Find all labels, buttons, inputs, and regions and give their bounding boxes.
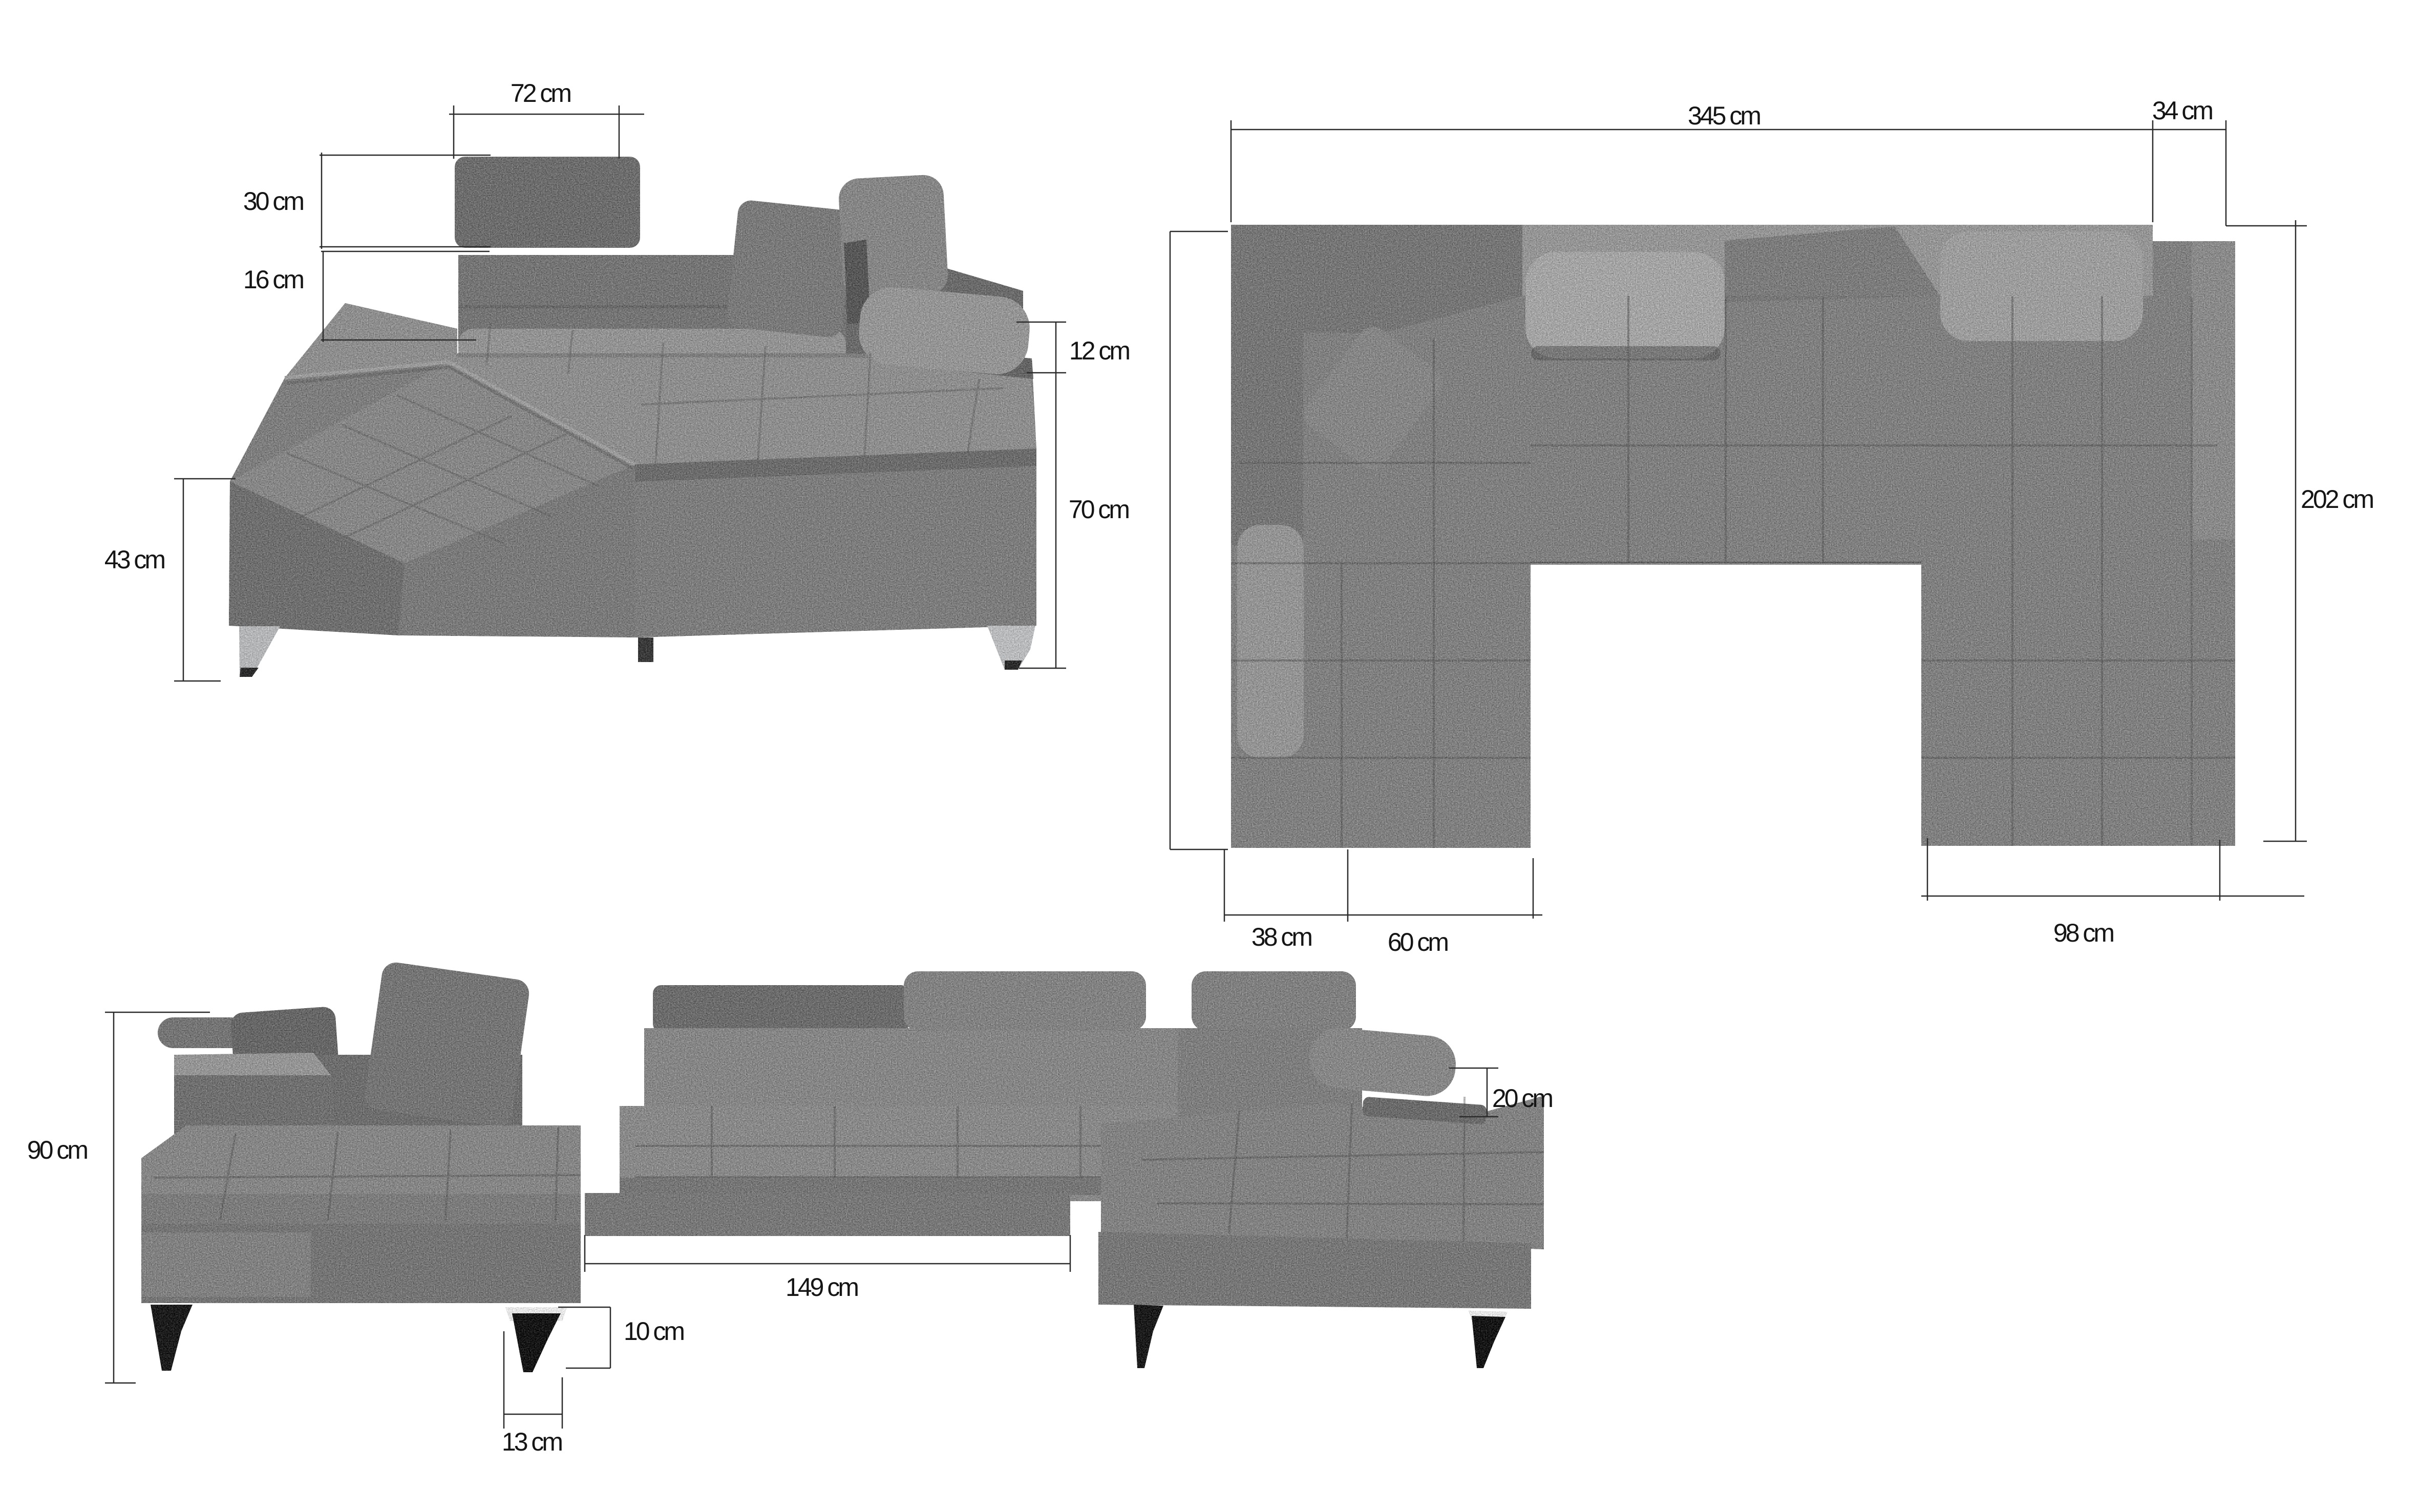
svg-text:70 cm: 70 cm <box>1069 495 1129 524</box>
svg-text:43 cm: 43 cm <box>104 545 165 574</box>
svg-text:34 cm: 34 cm <box>2152 96 2213 125</box>
svg-text:72 cm: 72 cm <box>511 79 571 108</box>
svg-text:10 cm: 10 cm <box>624 1317 684 1346</box>
svg-text:90 cm: 90 cm <box>27 1136 88 1164</box>
svg-text:149 cm: 149 cm <box>786 1273 858 1302</box>
svg-text:20 cm: 20 cm <box>1492 1084 1553 1113</box>
svg-text:98 cm: 98 cm <box>2053 919 2114 947</box>
svg-text:60 cm: 60 cm <box>1388 928 1448 956</box>
svg-text:202 cm: 202 cm <box>2301 485 2373 514</box>
svg-text:345 cm: 345 cm <box>1688 101 1760 130</box>
svg-text:38 cm: 38 cm <box>1251 923 1312 951</box>
svg-text:30 cm: 30 cm <box>243 187 304 216</box>
svg-text:13 cm: 13 cm <box>502 1428 562 1456</box>
svg-text:16 cm: 16 cm <box>243 265 304 294</box>
svg-text:12 cm: 12 cm <box>1069 336 1130 365</box>
